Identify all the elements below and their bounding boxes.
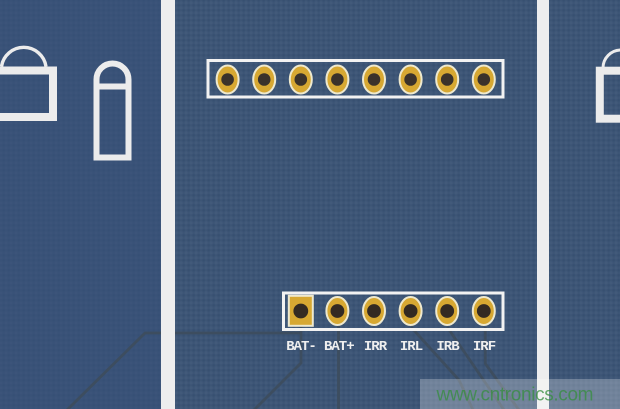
svg-text:IRL: IRL: [400, 339, 423, 355]
svg-text:BAT+: BAT+: [324, 339, 354, 355]
svg-text:IRB: IRB: [436, 339, 460, 355]
svg-text:IRF: IRF: [473, 339, 496, 355]
svg-text:www.cntronics.com: www.cntronics.com: [436, 385, 594, 406]
svg-text:BAT-: BAT-: [286, 339, 316, 355]
svg-text:IRR: IRR: [364, 339, 388, 355]
